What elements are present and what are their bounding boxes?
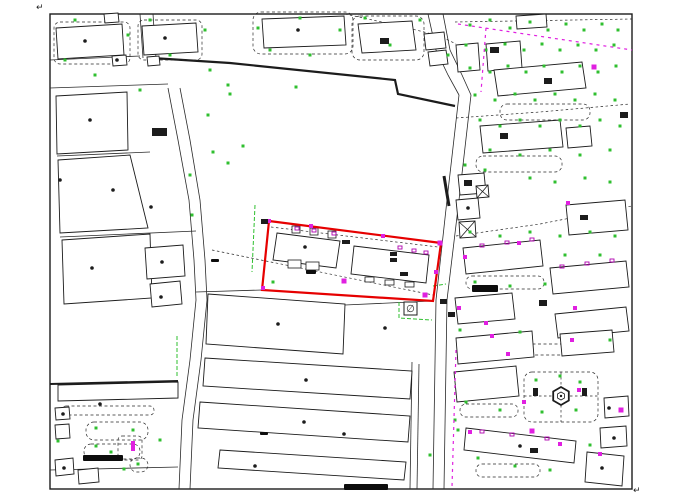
building (56, 24, 124, 59)
tree-dot (561, 71, 564, 74)
building-annex (405, 282, 414, 287)
cad-site-plan: ∅↵↵ (0, 0, 683, 503)
survey-marker (484, 321, 488, 325)
tree-dot (519, 154, 522, 157)
tree-dot (619, 125, 622, 128)
tree-dot (457, 429, 460, 432)
solid-block (261, 219, 268, 224)
tree-dot (613, 44, 616, 47)
tree-dot (554, 181, 557, 184)
pavilion-center-dot (560, 395, 562, 397)
solid-block (582, 388, 587, 396)
tree-dot (559, 49, 562, 52)
tree-dot (227, 84, 230, 87)
tree-dot (583, 29, 586, 32)
solid-block (390, 252, 397, 256)
building (55, 424, 70, 439)
tree-dot (95, 445, 98, 448)
tree-dot (614, 99, 617, 102)
survey-marker (490, 334, 494, 338)
tree-dot (364, 17, 367, 20)
tree-dot (504, 43, 507, 46)
tree-dot (541, 411, 544, 414)
building-dot (88, 118, 92, 122)
solid-block (380, 38, 389, 44)
building-dot (90, 266, 94, 270)
tree-dot (589, 231, 592, 234)
solid-block (490, 47, 499, 53)
tree-dot (499, 409, 502, 412)
tree-dot (519, 119, 522, 122)
tree-dot (159, 439, 162, 442)
tree-dot (584, 177, 587, 180)
tree-dot (464, 164, 467, 167)
solid-block (500, 133, 508, 139)
tree-dot (489, 71, 492, 74)
survey-marker (573, 306, 577, 310)
illegible-label (472, 285, 498, 292)
building (456, 43, 480, 72)
tree-dot (137, 463, 140, 466)
building (566, 126, 592, 148)
building-dot (163, 36, 167, 40)
building (585, 452, 624, 486)
site-plan-svg: ∅↵↵ (0, 0, 683, 503)
building-dot (111, 188, 115, 192)
tree-dot (577, 44, 580, 47)
tree-dot (595, 49, 598, 52)
building-dot (61, 412, 65, 416)
building-dot (115, 58, 119, 62)
tree-dot (575, 409, 578, 412)
tree-dot (189, 174, 192, 177)
tree-dot (509, 27, 512, 30)
tree-dot (127, 34, 130, 37)
corner-mark-icon: ↵ (36, 3, 44, 13)
tree-dot (207, 114, 210, 117)
building-dot (253, 464, 257, 468)
tree-dot (419, 19, 422, 22)
building-dot (612, 436, 616, 440)
building (78, 468, 99, 484)
tree-dot (339, 29, 342, 32)
building-dot (159, 295, 163, 299)
illegible-label (83, 455, 123, 461)
tree-dot (597, 71, 600, 74)
building-dot (276, 322, 280, 326)
tree-dot (499, 125, 502, 128)
tree-dot (599, 119, 602, 122)
tree-dot (469, 24, 472, 27)
building-dot (83, 39, 87, 43)
building-dot (160, 260, 164, 264)
tree-dot (227, 162, 230, 165)
tree-dot (609, 149, 612, 152)
solid-block (342, 240, 350, 244)
building-dot (302, 420, 306, 424)
tree-dot (459, 329, 462, 332)
building (358, 21, 416, 53)
survey-marker (261, 286, 265, 290)
tree-dot (299, 17, 302, 20)
building-annex (365, 277, 374, 282)
tree-dot (579, 125, 582, 128)
tree-dot (94, 74, 97, 77)
building-dot (383, 326, 387, 330)
tree-dot (529, 177, 532, 180)
tree-dot (544, 283, 547, 286)
tree-dot (95, 427, 98, 430)
tree-dot (149, 19, 152, 22)
tree-dot (191, 214, 194, 217)
solid-block (620, 112, 628, 118)
survey-marker (619, 408, 624, 413)
building (206, 294, 345, 354)
tree-dot (257, 27, 260, 30)
tree-dot (519, 331, 522, 334)
building-annex (306, 262, 319, 270)
survey-marker (342, 279, 347, 284)
survey-marker (463, 255, 467, 259)
tree-dot (579, 381, 582, 384)
solid-block (530, 448, 538, 453)
tree-dot (465, 401, 468, 404)
solid-block (440, 299, 447, 304)
tree-dot (601, 23, 604, 26)
tree-dot (123, 468, 126, 471)
survey-marker (530, 429, 535, 434)
building-dot (518, 444, 522, 448)
tree-dot (272, 281, 275, 284)
solid-block (544, 78, 552, 84)
survey-marker (577, 388, 581, 392)
tree-dot (565, 23, 568, 26)
tree-dot (549, 149, 552, 152)
tree-dot (514, 465, 517, 468)
survey-marker (522, 400, 526, 404)
building (455, 293, 515, 324)
building-dot (62, 466, 66, 470)
solid-block (448, 312, 455, 317)
building-dot (342, 432, 346, 436)
tree-dot (499, 235, 502, 238)
tree-dot (477, 457, 480, 460)
building-annex (288, 260, 301, 268)
manhole-symbol-icon: ∅ (406, 304, 415, 315)
survey-marker (457, 306, 461, 310)
illegible-label (260, 432, 268, 435)
tree-dot (485, 49, 488, 52)
tree-dot (465, 44, 468, 47)
tree-dot (559, 375, 562, 378)
building (145, 245, 185, 279)
survey-marker (566, 201, 570, 205)
illegible-label (211, 259, 219, 262)
building (428, 50, 448, 66)
tree-dot (549, 469, 552, 472)
tree-dot (212, 151, 215, 154)
building (566, 200, 628, 235)
tree-dot (539, 125, 542, 128)
tree-dot (541, 43, 544, 46)
building-dot (600, 466, 604, 470)
solid-block (580, 215, 588, 220)
tree-dot (139, 89, 142, 92)
building-dot (303, 245, 307, 249)
tree-dot (525, 71, 528, 74)
building-dot (304, 378, 308, 382)
tree-dot (554, 93, 557, 96)
tree-dot (479, 119, 482, 122)
tree-dot (429, 454, 432, 457)
building (454, 366, 519, 402)
tree-dot (489, 19, 492, 22)
building-dot (466, 206, 470, 210)
tree-dot (269, 49, 272, 52)
solid-block (390, 258, 397, 262)
building (424, 32, 446, 50)
tree-dot (529, 21, 532, 24)
tree-dot (209, 69, 212, 72)
tree-dot (547, 29, 550, 32)
survey-marker (598, 452, 602, 456)
corner-mark-icon: ↵ (633, 486, 641, 496)
building (56, 92, 128, 154)
solid-block (533, 388, 538, 396)
solid-block (539, 300, 547, 306)
tree-dot (57, 440, 60, 443)
tree-dot (559, 235, 562, 238)
tree-dot (229, 93, 232, 96)
tree-dot (614, 235, 617, 238)
tree-dot (489, 149, 492, 152)
building-annex (385, 280, 394, 285)
tree-dot (447, 54, 450, 57)
tree-dot (514, 93, 517, 96)
tree-dot (295, 86, 298, 89)
tree-dot (494, 99, 497, 102)
tree-dot (609, 339, 612, 342)
tree-dot (169, 54, 172, 57)
tree-dot (543, 65, 546, 68)
tree-dot (594, 93, 597, 96)
solid-block (400, 272, 408, 276)
building-dot (58, 178, 62, 182)
building-dot (607, 406, 611, 410)
tree-dot (74, 19, 77, 22)
tree-dot (589, 444, 592, 447)
tree-dot (529, 231, 532, 234)
survey-marker (592, 65, 597, 70)
building (150, 281, 182, 307)
survey-marker (309, 224, 313, 228)
building (142, 23, 198, 55)
tree-dot (534, 99, 537, 102)
tree-dot (309, 54, 312, 57)
survey-marker (517, 241, 521, 245)
tree-dot (204, 29, 207, 32)
tree-dot (535, 379, 538, 382)
tree-dot (507, 65, 510, 68)
building (112, 55, 127, 66)
tree-dot (242, 145, 245, 148)
building-dot (149, 205, 153, 209)
tree-dot (615, 65, 618, 68)
survey-marker (423, 293, 428, 298)
solid-block (464, 180, 472, 186)
building (104, 13, 119, 23)
tree-dot (474, 94, 477, 97)
building-dot (296, 28, 300, 32)
survey-marker (131, 441, 135, 451)
survey-marker (558, 442, 562, 446)
tree-dot (609, 181, 612, 184)
survey-marker (570, 338, 574, 342)
survey-marker (468, 430, 472, 434)
survey-marker (381, 234, 385, 238)
survey-marker (438, 241, 443, 246)
tree-dot (574, 99, 577, 102)
building (62, 234, 152, 304)
tree-dot (617, 29, 620, 32)
building (147, 56, 160, 66)
tree-dot (579, 154, 582, 157)
building-dot (98, 402, 102, 406)
survey-marker (506, 352, 510, 356)
solid-block (152, 128, 167, 136)
illegible-label (306, 270, 316, 274)
building (560, 330, 614, 356)
building (480, 120, 563, 153)
survey-marker (434, 270, 438, 274)
tree-dot (523, 49, 526, 52)
building (262, 16, 346, 48)
tree-dot (484, 169, 487, 172)
tree-dot (469, 67, 472, 70)
tree-dot (579, 65, 582, 68)
tree-dot (599, 254, 602, 257)
building (58, 382, 178, 401)
tree-dot (469, 231, 472, 234)
tree-dot (564, 254, 567, 257)
tree-dot (64, 59, 67, 62)
tree-dot (509, 285, 512, 288)
illegible-label (344, 484, 388, 490)
tree-dot (559, 119, 562, 122)
tree-dot (132, 429, 135, 432)
tree-dot (474, 281, 477, 284)
tree-dot (110, 451, 113, 454)
